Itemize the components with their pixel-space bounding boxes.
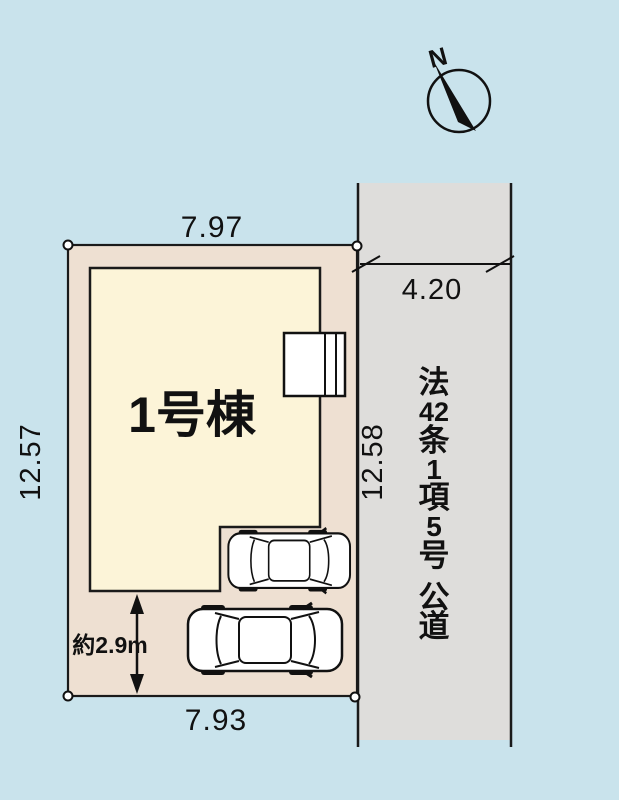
dimension-top: 7.97 xyxy=(181,211,243,244)
dimension-right: 12.58 xyxy=(357,423,389,501)
site-plan-canvas: N 7.97 7.93 12.57 12.58 4.20 約2.9m 1号棟 法… xyxy=(0,0,619,800)
road-label: 法 42 条 1 項 5 号 公 道 xyxy=(419,365,451,644)
car-top-view-small xyxy=(228,528,350,593)
site-plan-drawing: N 7.97 7.93 12.57 12.58 4.20 約2.9m 1号棟 法… xyxy=(0,0,619,800)
dimension-road-width: 4.20 xyxy=(402,274,462,306)
car-top-view-sedan xyxy=(188,603,342,677)
road-label-line: 項 xyxy=(419,480,451,515)
dimension-left: 12.57 xyxy=(15,423,47,501)
road-label-line: 号 xyxy=(419,538,450,573)
road-label-line: 条 xyxy=(419,423,450,458)
dimension-bottom: 7.93 xyxy=(185,704,247,737)
road-label-line: 道 xyxy=(419,609,450,644)
building-label: 1号棟 xyxy=(128,387,257,443)
entrance-box xyxy=(284,333,345,396)
road-label-line: 法 xyxy=(419,365,450,400)
dimension-parking-depth: 約2.9m xyxy=(72,632,147,658)
